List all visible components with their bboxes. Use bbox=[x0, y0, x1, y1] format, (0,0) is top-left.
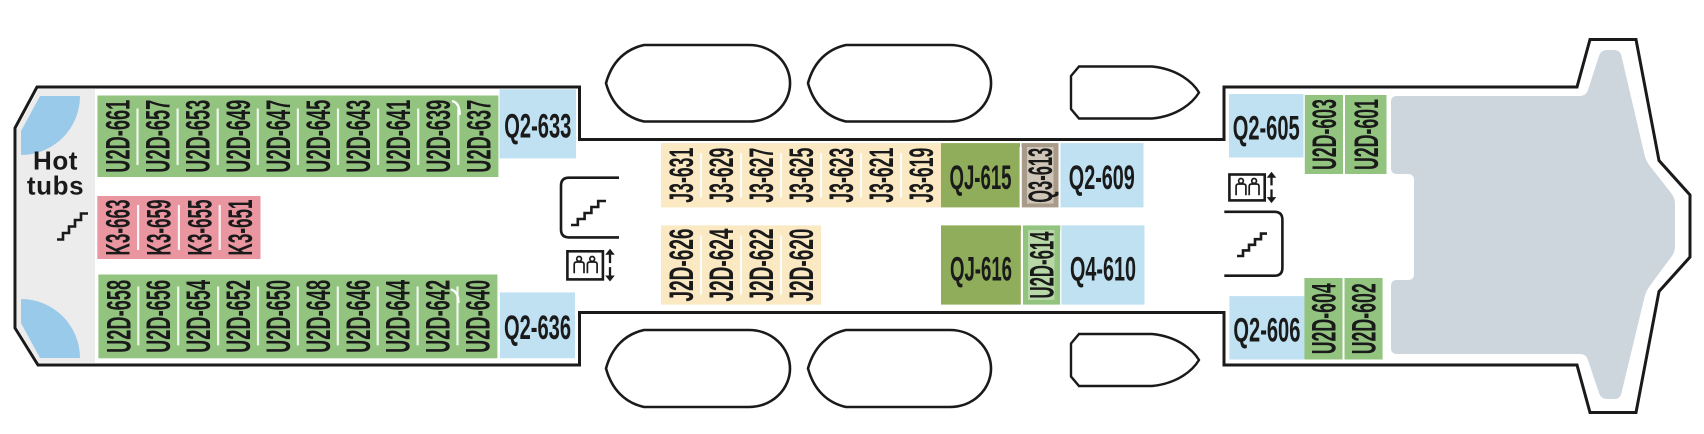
svg-text:Q2-636: Q2-636 bbox=[504, 309, 571, 347]
svg-text:U2D-640: U2D-640 bbox=[460, 280, 498, 353]
svg-text:U2D-641: U2D-641 bbox=[380, 100, 418, 173]
svg-text:J3-631: J3-631 bbox=[663, 148, 701, 203]
svg-text:U2D-639: U2D-639 bbox=[420, 100, 458, 173]
svg-text:U2D-648: U2D-648 bbox=[300, 280, 338, 353]
svg-text:U2D-644: U2D-644 bbox=[380, 280, 418, 353]
svg-text:K3-663: K3-663 bbox=[100, 200, 138, 256]
svg-text:J3-623: J3-623 bbox=[823, 148, 861, 203]
svg-text:U2D-654: U2D-654 bbox=[180, 280, 218, 353]
svg-text:U2D-653: U2D-653 bbox=[180, 100, 218, 173]
svg-text:U2D-647: U2D-647 bbox=[260, 100, 298, 173]
svg-text:QJ-615: QJ-615 bbox=[950, 159, 1012, 197]
svg-text:U2D-650: U2D-650 bbox=[260, 280, 298, 353]
svg-text:U2D-661: U2D-661 bbox=[100, 100, 138, 173]
svg-text:U2D-656: U2D-656 bbox=[140, 280, 178, 353]
svg-text:Q2-605: Q2-605 bbox=[1233, 109, 1300, 147]
svg-text:J2D-624: J2D-624 bbox=[703, 228, 741, 301]
svg-text:U2D-646: U2D-646 bbox=[340, 280, 378, 353]
svg-text:U2D-603: U2D-603 bbox=[1306, 99, 1344, 170]
svg-text:U2D-601: U2D-601 bbox=[1348, 99, 1386, 170]
svg-text:U2D-614: U2D-614 bbox=[1024, 231, 1062, 298]
svg-text:J3-629: J3-629 bbox=[703, 148, 741, 203]
svg-text:K3-655: K3-655 bbox=[181, 200, 219, 256]
svg-text:U2D-649: U2D-649 bbox=[220, 100, 258, 173]
svg-text:Q4-610: Q4-610 bbox=[1070, 251, 1136, 289]
svg-text:J3-625: J3-625 bbox=[783, 148, 821, 203]
svg-text:J3-621: J3-621 bbox=[863, 148, 901, 203]
svg-text:J3-627: J3-627 bbox=[743, 148, 781, 203]
svg-text:tubs: tubs bbox=[27, 171, 84, 201]
svg-text:Q2-633: Q2-633 bbox=[504, 107, 571, 145]
svg-text:Q3-613: Q3-613 bbox=[1022, 148, 1060, 203]
svg-text:U2D-602: U2D-602 bbox=[1346, 283, 1384, 354]
svg-text:K3-651: K3-651 bbox=[222, 200, 260, 256]
svg-text:J3-619: J3-619 bbox=[903, 148, 941, 203]
svg-text:K3-659: K3-659 bbox=[141, 200, 179, 256]
svg-text:J2D-622: J2D-622 bbox=[743, 229, 781, 302]
svg-text:U2D-637: U2D-637 bbox=[460, 100, 498, 173]
svg-text:J2D-620: J2D-620 bbox=[783, 229, 821, 302]
svg-text:U2D-652: U2D-652 bbox=[220, 280, 258, 353]
svg-text:U2D-643: U2D-643 bbox=[340, 100, 378, 173]
svg-text:U2D-604: U2D-604 bbox=[1306, 283, 1344, 354]
svg-text:J2D-626: J2D-626 bbox=[663, 229, 701, 302]
svg-text:Q2-609: Q2-609 bbox=[1069, 159, 1135, 197]
svg-text:U2D-658: U2D-658 bbox=[100, 280, 138, 353]
svg-text:QJ-616: QJ-616 bbox=[950, 251, 1012, 289]
svg-text:U2D-645: U2D-645 bbox=[300, 100, 338, 173]
svg-text:Q2-606: Q2-606 bbox=[1233, 311, 1300, 349]
svg-text:U2D-657: U2D-657 bbox=[140, 100, 178, 173]
